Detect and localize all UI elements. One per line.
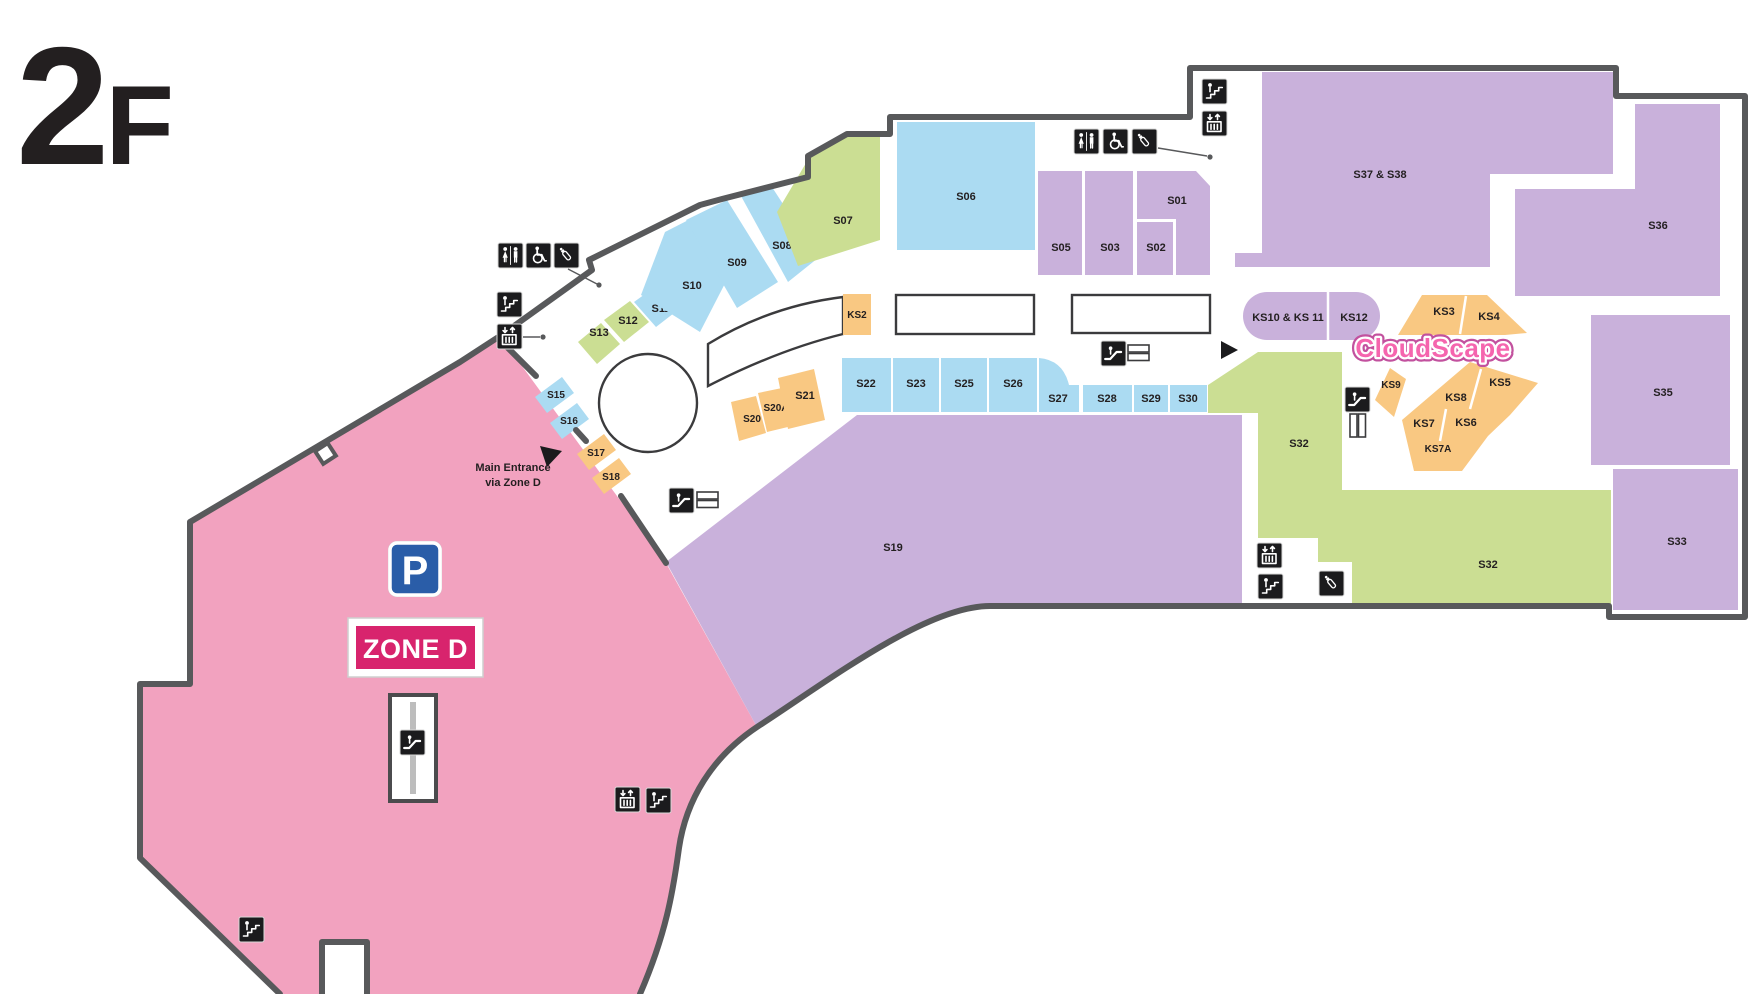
baby-care-icon (1132, 129, 1157, 154)
escalator-icon (400, 730, 425, 755)
svg-text:S37 & S38: S37 & S38 (1353, 169, 1406, 181)
svg-text:KS12: KS12 (1340, 312, 1368, 324)
shop-s25[interactable]: S25 (941, 358, 987, 412)
skylight-opening-2 (1072, 295, 1210, 333)
svg-text:S13: S13 (589, 327, 609, 339)
shop-s35[interactable]: S35 (1591, 315, 1730, 465)
elevator-icon (497, 324, 522, 349)
shop-s19[interactable]: S19 (666, 415, 1242, 727)
svg-text:KS5: KS5 (1489, 377, 1510, 389)
stairs-icon (497, 292, 522, 317)
escalator-icon (669, 488, 694, 513)
accessible-icon (526, 243, 551, 268)
svg-text:KS10 & KS 11: KS10 & KS 11 (1252, 312, 1324, 324)
shop-s06[interactable]: S06 (897, 122, 1035, 250)
escalator-symbol (697, 492, 718, 508)
svg-text:S17: S17 (587, 448, 605, 459)
kiosk-ks9[interactable]: KS9 (1375, 368, 1406, 417)
stairs-icon (646, 788, 671, 813)
svg-text:S30: S30 (1178, 393, 1198, 405)
svg-text:S28: S28 (1097, 393, 1117, 405)
svg-text:S27: S27 (1048, 393, 1068, 405)
svg-text:S32: S32 (1289, 438, 1309, 450)
svg-text:S15: S15 (547, 390, 565, 401)
svg-text:S35: S35 (1653, 387, 1673, 399)
svg-text:ZONE D: ZONE D (363, 634, 468, 664)
svg-text:KS7A: KS7A (1425, 444, 1452, 455)
svg-text:S20: S20 (743, 414, 761, 425)
shop-s28[interactable]: S28 (1083, 385, 1132, 412)
shop-s33[interactable]: S33 (1613, 469, 1738, 610)
kiosk-ks5-ks8-cluster[interactable]: KS5 KS8 KS7 KS6 KS7A (1402, 362, 1538, 471)
cloudscape-text: CloudScape (1355, 333, 1510, 363)
escalator-icon (1101, 341, 1126, 366)
pointer-dot (540, 334, 545, 339)
entrance-arrow-icon (1221, 341, 1238, 359)
parking-icon: P (388, 541, 442, 597)
svg-text:S36: S36 (1648, 220, 1668, 232)
elevator-icon (615, 787, 640, 812)
shop-s05[interactable]: S05 (1038, 171, 1082, 275)
svg-text:S06: S06 (956, 191, 976, 203)
svg-text:KS9: KS9 (1381, 380, 1401, 391)
shop-s03[interactable]: S03 (1085, 171, 1133, 275)
baby-care-icon (554, 243, 579, 268)
svg-text:S12: S12 (618, 315, 638, 327)
accessible-icon (1103, 129, 1128, 154)
shop-s22[interactable]: S22 (842, 358, 891, 412)
kiosk-ks3-ks4[interactable]: KS3 KS4 (1398, 295, 1527, 335)
svg-text:KS4: KS4 (1478, 311, 1500, 323)
restroom-icon (498, 243, 523, 268)
shop-s23[interactable]: S23 (893, 358, 939, 412)
mall-map: S19 S13 S12 S11 S10 S09 S08 S07 (0, 0, 1764, 994)
escalator-icon (1345, 387, 1370, 412)
svg-text:S23: S23 (906, 378, 926, 390)
pointer-dot (1207, 154, 1212, 159)
shop-s07[interactable]: S07 (777, 136, 880, 266)
kiosk-ks2[interactable]: KS2 (843, 294, 871, 335)
escalator-symbol (1128, 345, 1149, 361)
svg-text:S16: S16 (560, 416, 578, 427)
pointer-line (1158, 148, 1207, 156)
svg-text:KS8: KS8 (1445, 392, 1466, 404)
skylight-band (708, 297, 843, 386)
stairs-icon (1258, 574, 1283, 599)
svg-text:Main Entrance: Main Entrance (475, 462, 550, 474)
svg-text:S18: S18 (602, 472, 620, 483)
svg-text:S05: S05 (1051, 242, 1071, 254)
escalator-symbol (1350, 414, 1366, 437)
shop-s02[interactable]: S02 (1137, 222, 1173, 275)
shop-s30[interactable]: S30 (1170, 385, 1207, 412)
svg-text:via Zone D: via Zone D (485, 477, 541, 489)
shop-s27[interactable]: S27 (1039, 358, 1079, 412)
svg-text:S26: S26 (1003, 378, 1023, 390)
shop-s26[interactable]: S26 (989, 358, 1037, 412)
svg-text:P: P (402, 549, 429, 593)
svg-text:KS7: KS7 (1413, 418, 1434, 430)
atrium-void (599, 354, 697, 452)
svg-text:S21: S21 (795, 390, 815, 402)
zone-d-escalator-structure (390, 695, 436, 801)
restroom-icon (1074, 129, 1099, 154)
kiosk-ks12[interactable]: KS12 (1340, 312, 1368, 324)
pointer-dot (596, 282, 601, 287)
zone-d-badge: ZONE D (348, 618, 483, 677)
svg-text:S32: S32 (1478, 559, 1498, 571)
shop-s29[interactable]: S29 (1134, 385, 1168, 412)
svg-text:KS2: KS2 (847, 310, 867, 321)
svg-text:S07: S07 (833, 215, 853, 227)
svg-text:S02: S02 (1146, 242, 1166, 254)
svg-text:KS3: KS3 (1433, 306, 1454, 318)
shop-label: S19 (883, 542, 903, 554)
svg-text:S03: S03 (1100, 242, 1120, 254)
skylight-opening-1 (896, 295, 1034, 334)
stairs-icon (239, 917, 264, 942)
elevator-icon (1202, 111, 1227, 136)
svg-text:S29: S29 (1141, 393, 1161, 405)
svg-text:S22: S22 (856, 378, 876, 390)
elevator-icon (1257, 543, 1282, 568)
svg-text:S25: S25 (954, 378, 974, 390)
stairs-icon (1202, 79, 1227, 104)
shop-s32-south[interactable]: S32 (1318, 490, 1611, 608)
floor-plan-2f: 2F (0, 0, 1764, 994)
svg-text:KS6: KS6 (1455, 417, 1476, 429)
svg-text:S01: S01 (1167, 195, 1187, 207)
baby-care-icon (1319, 571, 1344, 596)
cloudscape-logo: CloudScape CloudScape CloudScape (1355, 333, 1510, 363)
svg-text:S33: S33 (1667, 536, 1687, 548)
svg-text:S09: S09 (727, 257, 747, 269)
svg-text:S10: S10 (682, 280, 702, 292)
